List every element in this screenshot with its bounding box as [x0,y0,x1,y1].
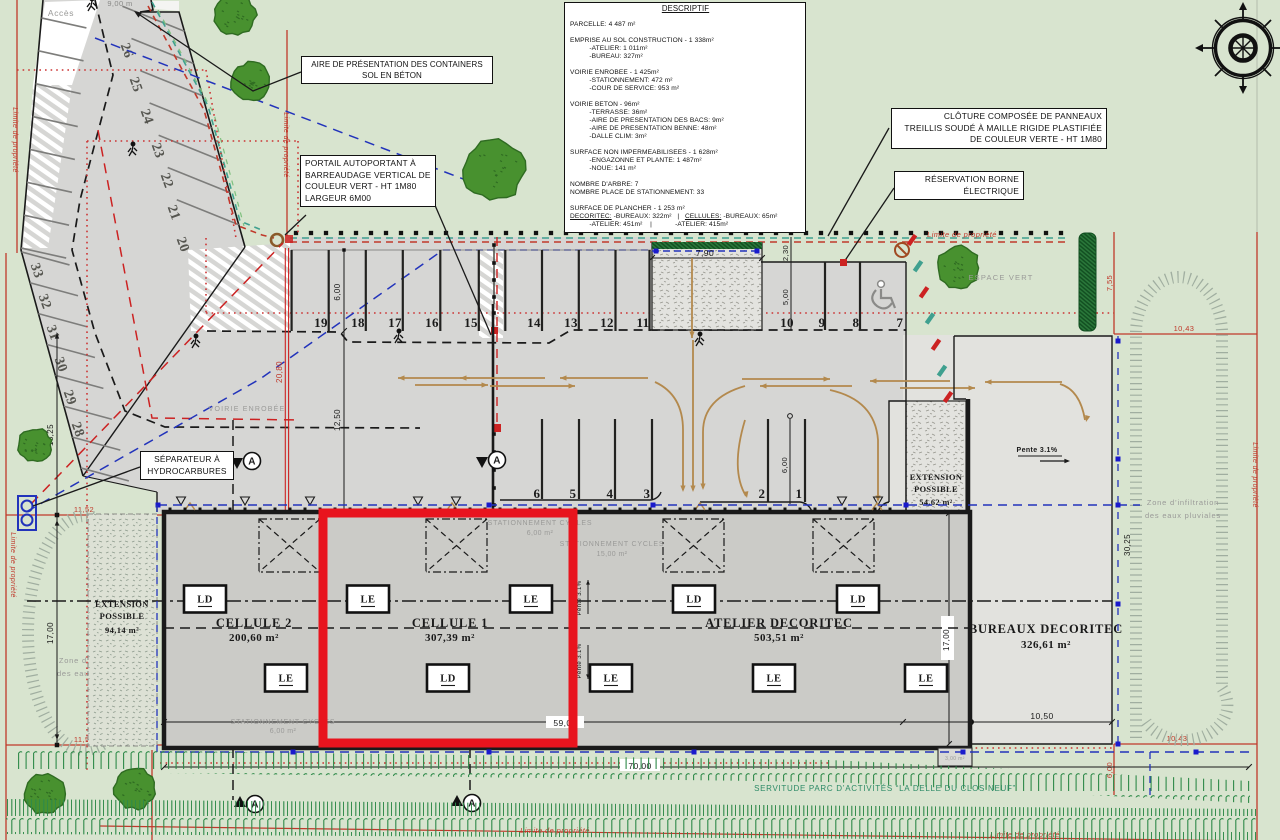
svg-text:19: 19 [314,315,328,330]
svg-text:11,52: 11,52 [74,505,94,514]
svg-text:18: 18 [351,315,365,330]
svg-text:ATELIER DECORITEC: ATELIER DECORITEC [705,616,853,630]
svg-text:10,43: 10,43 [1174,324,1195,333]
svg-text:5,00: 5,00 [781,289,790,305]
svg-text:Limite de propriété: Limite de propriété [282,112,289,178]
svg-text:LE: LE [360,595,375,606]
svg-text:20,80: 20,80 [275,361,284,383]
svg-text:6,00 m²: 6,00 m² [527,530,554,537]
svg-text:200,60 m²: 200,60 m² [229,632,279,644]
svg-text:Pente 3.1%: Pente 3.1% [577,580,583,615]
svg-text:CELLULE 1: CELLULE 1 [412,616,488,630]
svg-text:15: 15 [464,315,478,330]
svg-text:17,00: 17,00 [942,629,951,651]
svg-text:6: 6 [534,486,541,501]
svg-text:6,00: 6,00 [780,457,789,473]
svg-text:10: 10 [780,315,794,330]
svg-text:10,50: 10,50 [1030,711,1053,721]
svg-text:12: 12 [600,315,614,330]
svg-text:LE: LE [603,674,618,685]
svg-text:7,55: 7,55 [1105,275,1114,291]
svg-text:307,39 m²: 307,39 m² [425,632,475,644]
svg-text:9: 9 [819,315,826,330]
svg-text:Limite de propriété: Limite de propriété [11,107,18,173]
svg-text:7: 7 [897,315,904,330]
svg-text:Pente 3.1%: Pente 3.1% [577,643,583,678]
svg-text:6,00: 6,00 [333,283,342,300]
svg-text:6,00 m²: 6,00 m² [270,728,297,735]
svg-text:des eaux pluviales: des eaux pluviales [1145,511,1221,520]
svg-text:A: A [493,456,501,467]
svg-text:Limite de propriété: Limite de propriété [927,230,997,239]
svg-text:8: 8 [853,315,860,330]
svg-text:POSSIBLE: POSSIBLE [100,611,145,621]
svg-text:Limite de propriété: Limite de propriété [9,532,16,598]
svg-text:9,00 m: 9,00 m [107,0,132,8]
svg-text:326,61 m²: 326,61 m² [1021,639,1071,651]
svg-text:Pente 3.1%: Pente 3.1% [1017,447,1058,454]
svg-text:LE: LE [523,595,538,606]
svg-text:17: 17 [388,315,402,330]
svg-text:POSSIBLE: POSSIBLE [914,485,958,494]
svg-text:94,14 m²: 94,14 m² [105,625,139,635]
svg-text:503,51 m²: 503,51 m² [754,632,804,644]
svg-text:14: 14 [527,315,541,330]
svg-text:LE: LE [918,674,933,685]
svg-text:ESPACE VERT: ESPACE VERT [968,273,1033,282]
svg-text:2: 2 [759,486,766,501]
svg-text:7,90: 7,90 [696,248,714,258]
svg-text:Accès: Accès [48,8,74,18]
svg-text:VOIRIE ENROBÉE: VOIRIE ENROBÉE [209,404,286,413]
svg-text:BUREAUX DECORITEC: BUREAUX DECORITEC [969,622,1123,636]
svg-text:13: 13 [564,315,578,330]
svg-text:LD: LD [686,595,702,606]
svg-text:LD: LD [197,595,213,606]
svg-text:3: 3 [644,486,651,501]
svg-text:Limite de propriété: Limite de propriété [1251,442,1258,508]
svg-text:SERVITUDE PARC D’ACTIVITÉS “LA: SERVITUDE PARC D’ACTIVITÉS “LA DELLE DU … [754,784,1016,793]
svg-text:1: 1 [796,486,803,501]
svg-text:11: 11 [636,315,649,330]
svg-text:Zone d’infiltration: Zone d’infiltration [1147,498,1219,507]
svg-text:16: 16 [425,315,439,330]
svg-text:3,00 m²: 3,00 m² [945,756,965,762]
svg-text:4: 4 [607,486,614,501]
svg-text:EXTENSION: EXTENSION [910,473,962,482]
svg-text:CELLULE 2: CELLULE 2 [216,616,292,630]
svg-text:30,25: 30,25 [1123,534,1132,556]
svg-text:5: 5 [570,486,577,501]
svg-text:LE: LE [766,674,781,685]
svg-text:LD: LD [850,595,866,606]
svg-text:17,00: 17,00 [46,622,55,644]
svg-text:15,00 m²: 15,00 m² [597,551,628,558]
svg-text:12,50: 12,50 [333,409,342,431]
svg-text:LD: LD [440,674,456,685]
svg-text:LE: LE [278,674,293,685]
svg-text:A: A [248,457,256,468]
svg-text:2,30: 2,30 [781,245,790,261]
